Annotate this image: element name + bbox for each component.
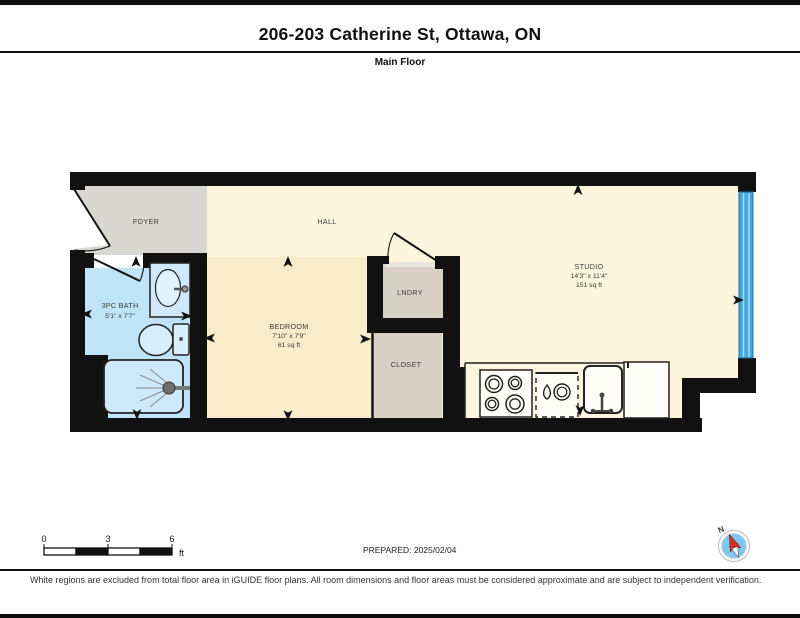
dishwasher-icon [536, 373, 578, 417]
scale-tick-0: 0 [41, 534, 46, 544]
bedroom-area: 61 sq ft [278, 342, 300, 349]
compass-icon: N [717, 524, 750, 561]
toilet-icon [139, 324, 189, 356]
vanity-sink-icon [150, 263, 190, 317]
window [739, 192, 753, 358]
bottom-border [0, 614, 800, 618]
sink-icon [584, 366, 622, 413]
bath-label: 3PC BATH [101, 301, 138, 310]
laundry-label: LNDRY [397, 288, 423, 297]
shower-icon [104, 360, 190, 413]
stove-icon [480, 370, 532, 417]
scale-bar: 0 3 6 ft [41, 534, 184, 558]
studio-dims: 14'3" x 11'4" [571, 273, 608, 280]
laundry-threshold [385, 262, 437, 267]
fridge-icon [624, 362, 669, 418]
studio-label: STUDIO [575, 262, 604, 271]
floor-plan: FOYER HALL 3PC BATH 5'1" x 7'7" BEDROOM … [0, 0, 800, 618]
scale-tick-3: 3 [105, 534, 110, 544]
room-closet [374, 333, 442, 418]
scale-unit: ft [179, 548, 185, 558]
bedroom-dims: 7'10" x 7'9" [272, 333, 306, 340]
scale-tick-6: 6 [169, 534, 174, 544]
bedroom-label: BEDROOM [269, 322, 308, 331]
hall-label: HALL [317, 217, 336, 226]
closet-label: CLOSET [391, 360, 422, 369]
disclaimer-text: White regions are excluded from total fl… [30, 575, 770, 585]
floor-plan-page: 206-203 Catherine St, Ottawa, ON Main Fl… [0, 0, 800, 618]
footer-divider [0, 569, 800, 571]
studio-area: 151 sq ft [576, 282, 602, 289]
foyer-label: FOYER [133, 217, 159, 226]
bath-dims: 5'1" x 7'7" [105, 313, 135, 320]
prepared-date: PREPARED: 2025/02/04 [363, 545, 456, 555]
measure-arrow-up [132, 256, 141, 267]
